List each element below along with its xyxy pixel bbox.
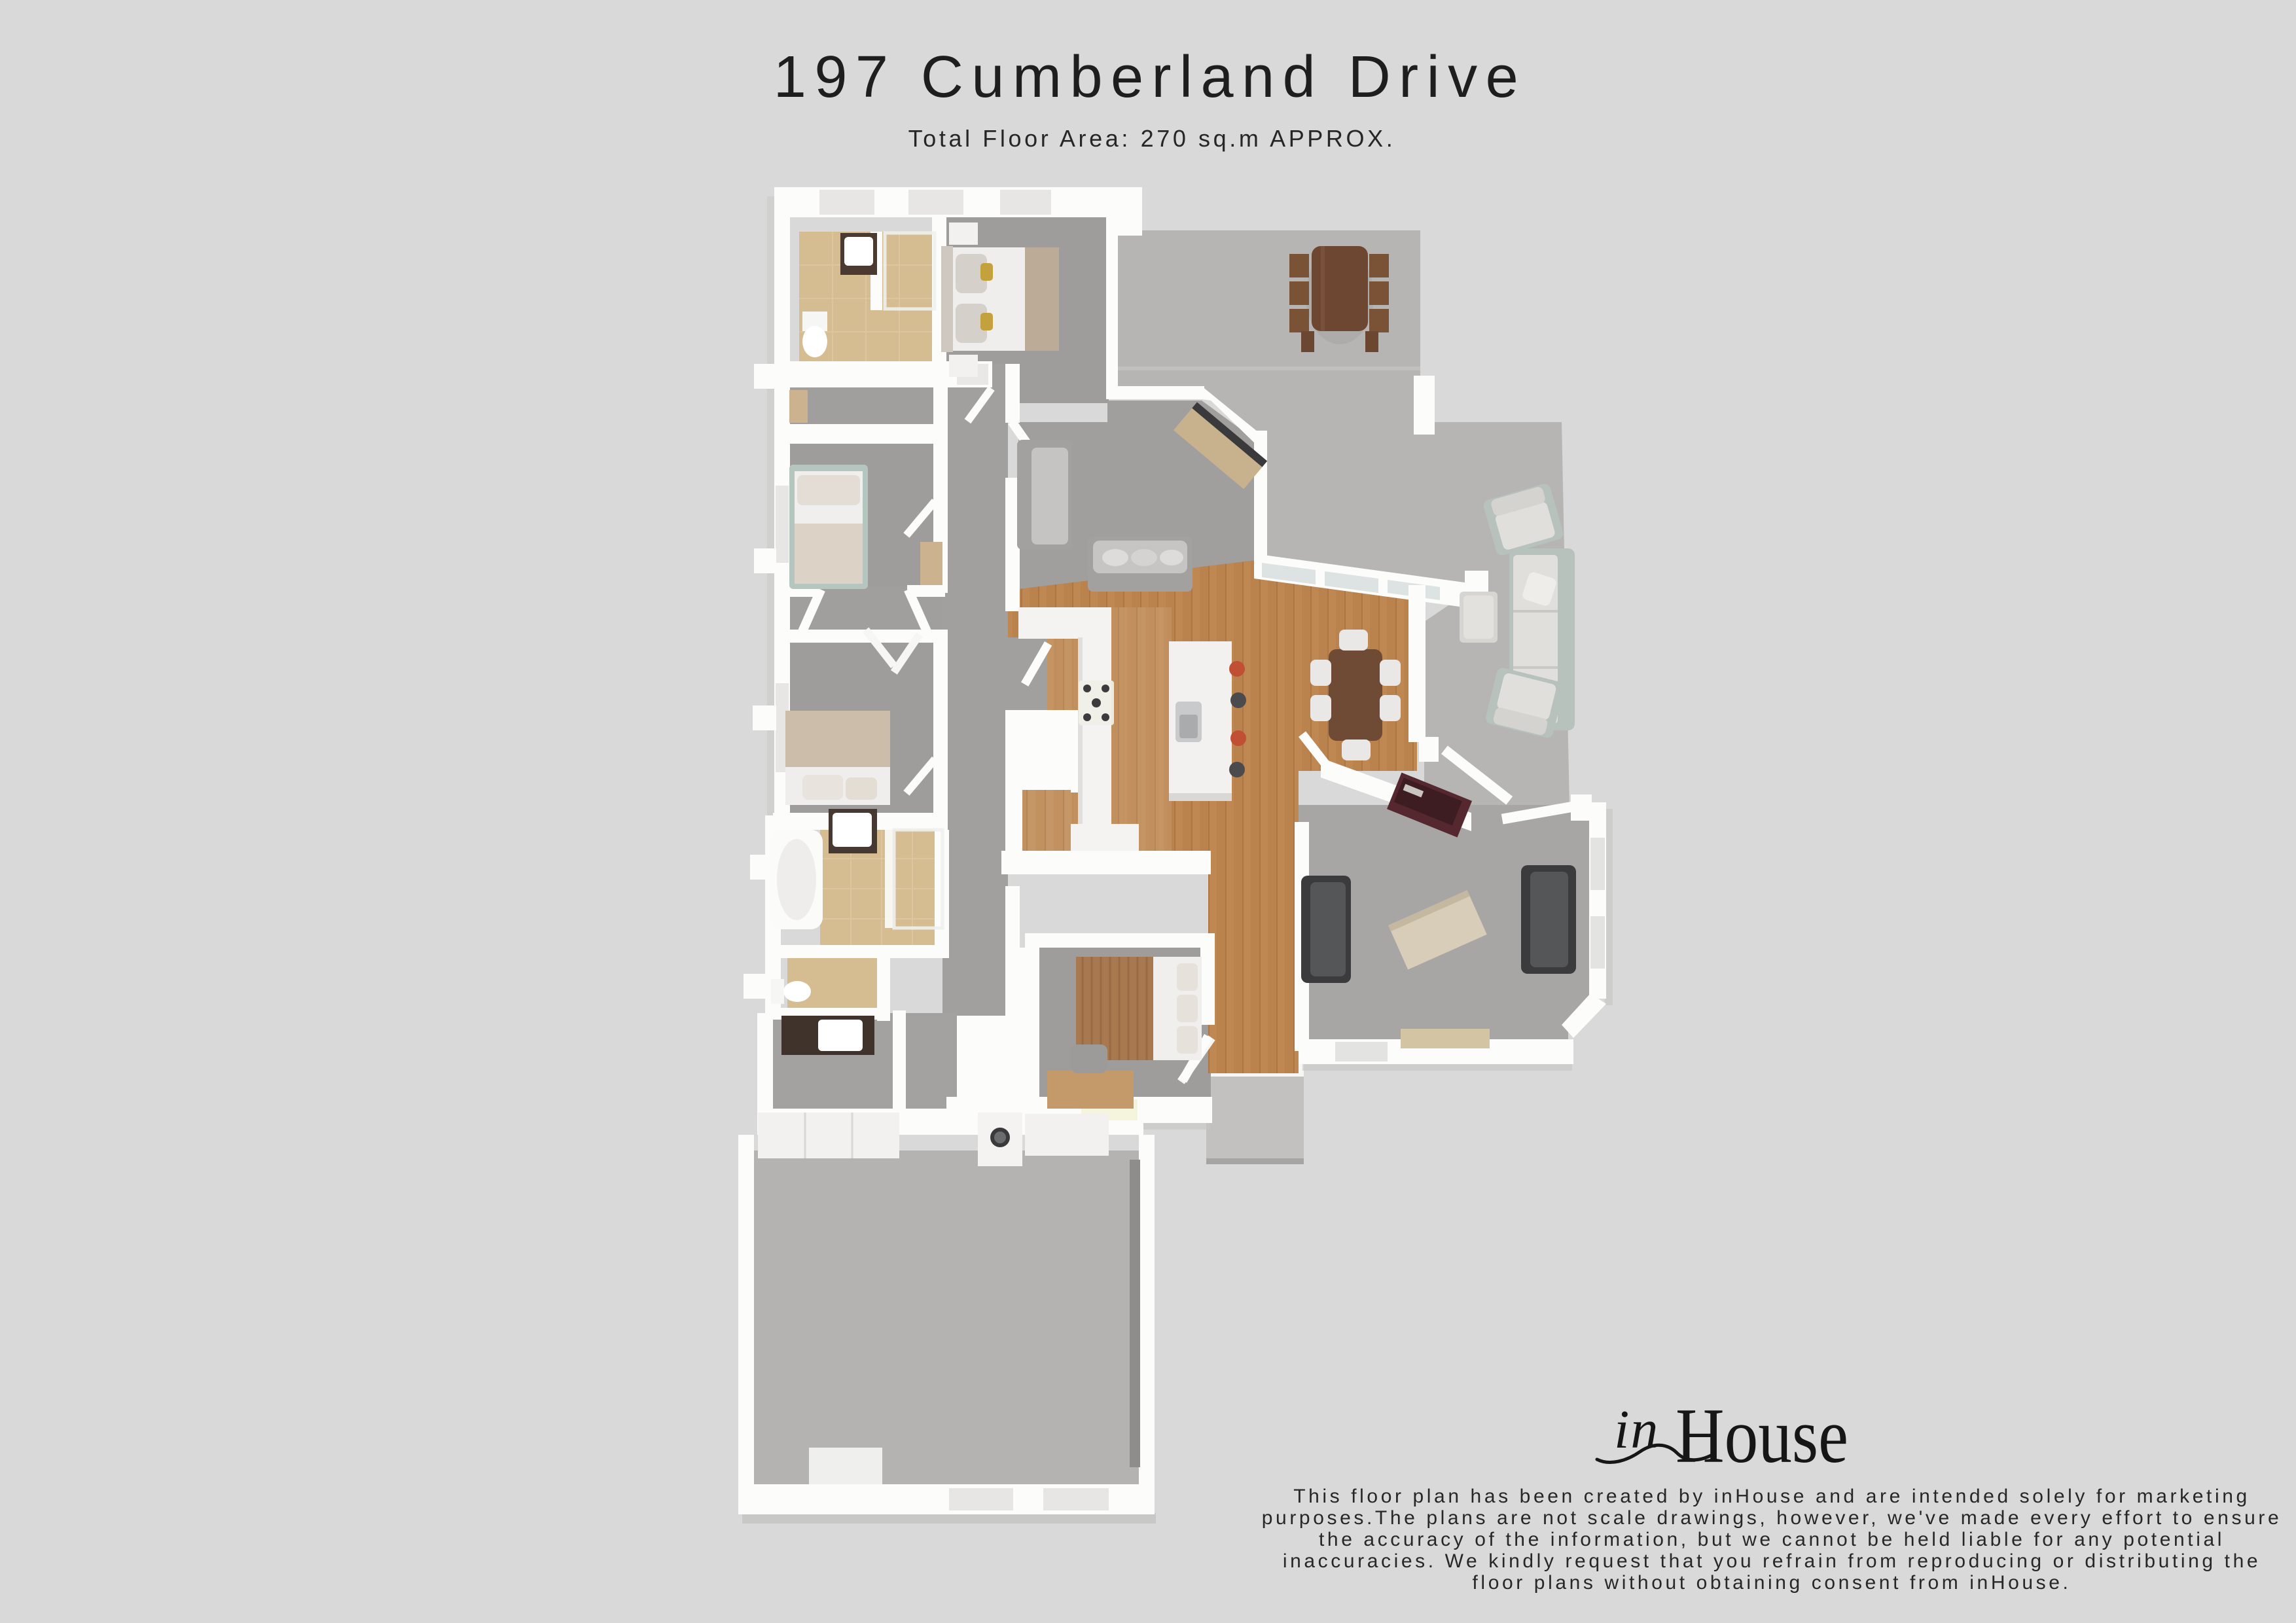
- svg-text:Total Floor Area: 270 sq.m APP: Total Floor Area: 270 sq.m APPROX.: [908, 125, 1396, 152]
- svg-text:the accuracy of the informatio: the accuracy of the information, but we …: [1319, 1529, 2225, 1550]
- svg-text:This floor plan has been creat: This floor plan has been created by inHo…: [1293, 1486, 2250, 1507]
- svg-text:floor plans without obtaining: floor plans without obtaining consent fr…: [1473, 1572, 2072, 1594]
- svg-text:inaccuracies. We kindly reques: inaccuracies. We kindly request that you…: [1283, 1550, 2261, 1572]
- svg-text:purposes.The plans are not sca: purposes.The plans are not scale drawing…: [1262, 1507, 2282, 1529]
- svg-text:House: House: [1676, 1392, 1848, 1479]
- svg-text:197 Cumberland Drive: 197 Cumberland Drive: [774, 45, 1526, 110]
- svg-text:in: in: [1614, 1399, 1659, 1460]
